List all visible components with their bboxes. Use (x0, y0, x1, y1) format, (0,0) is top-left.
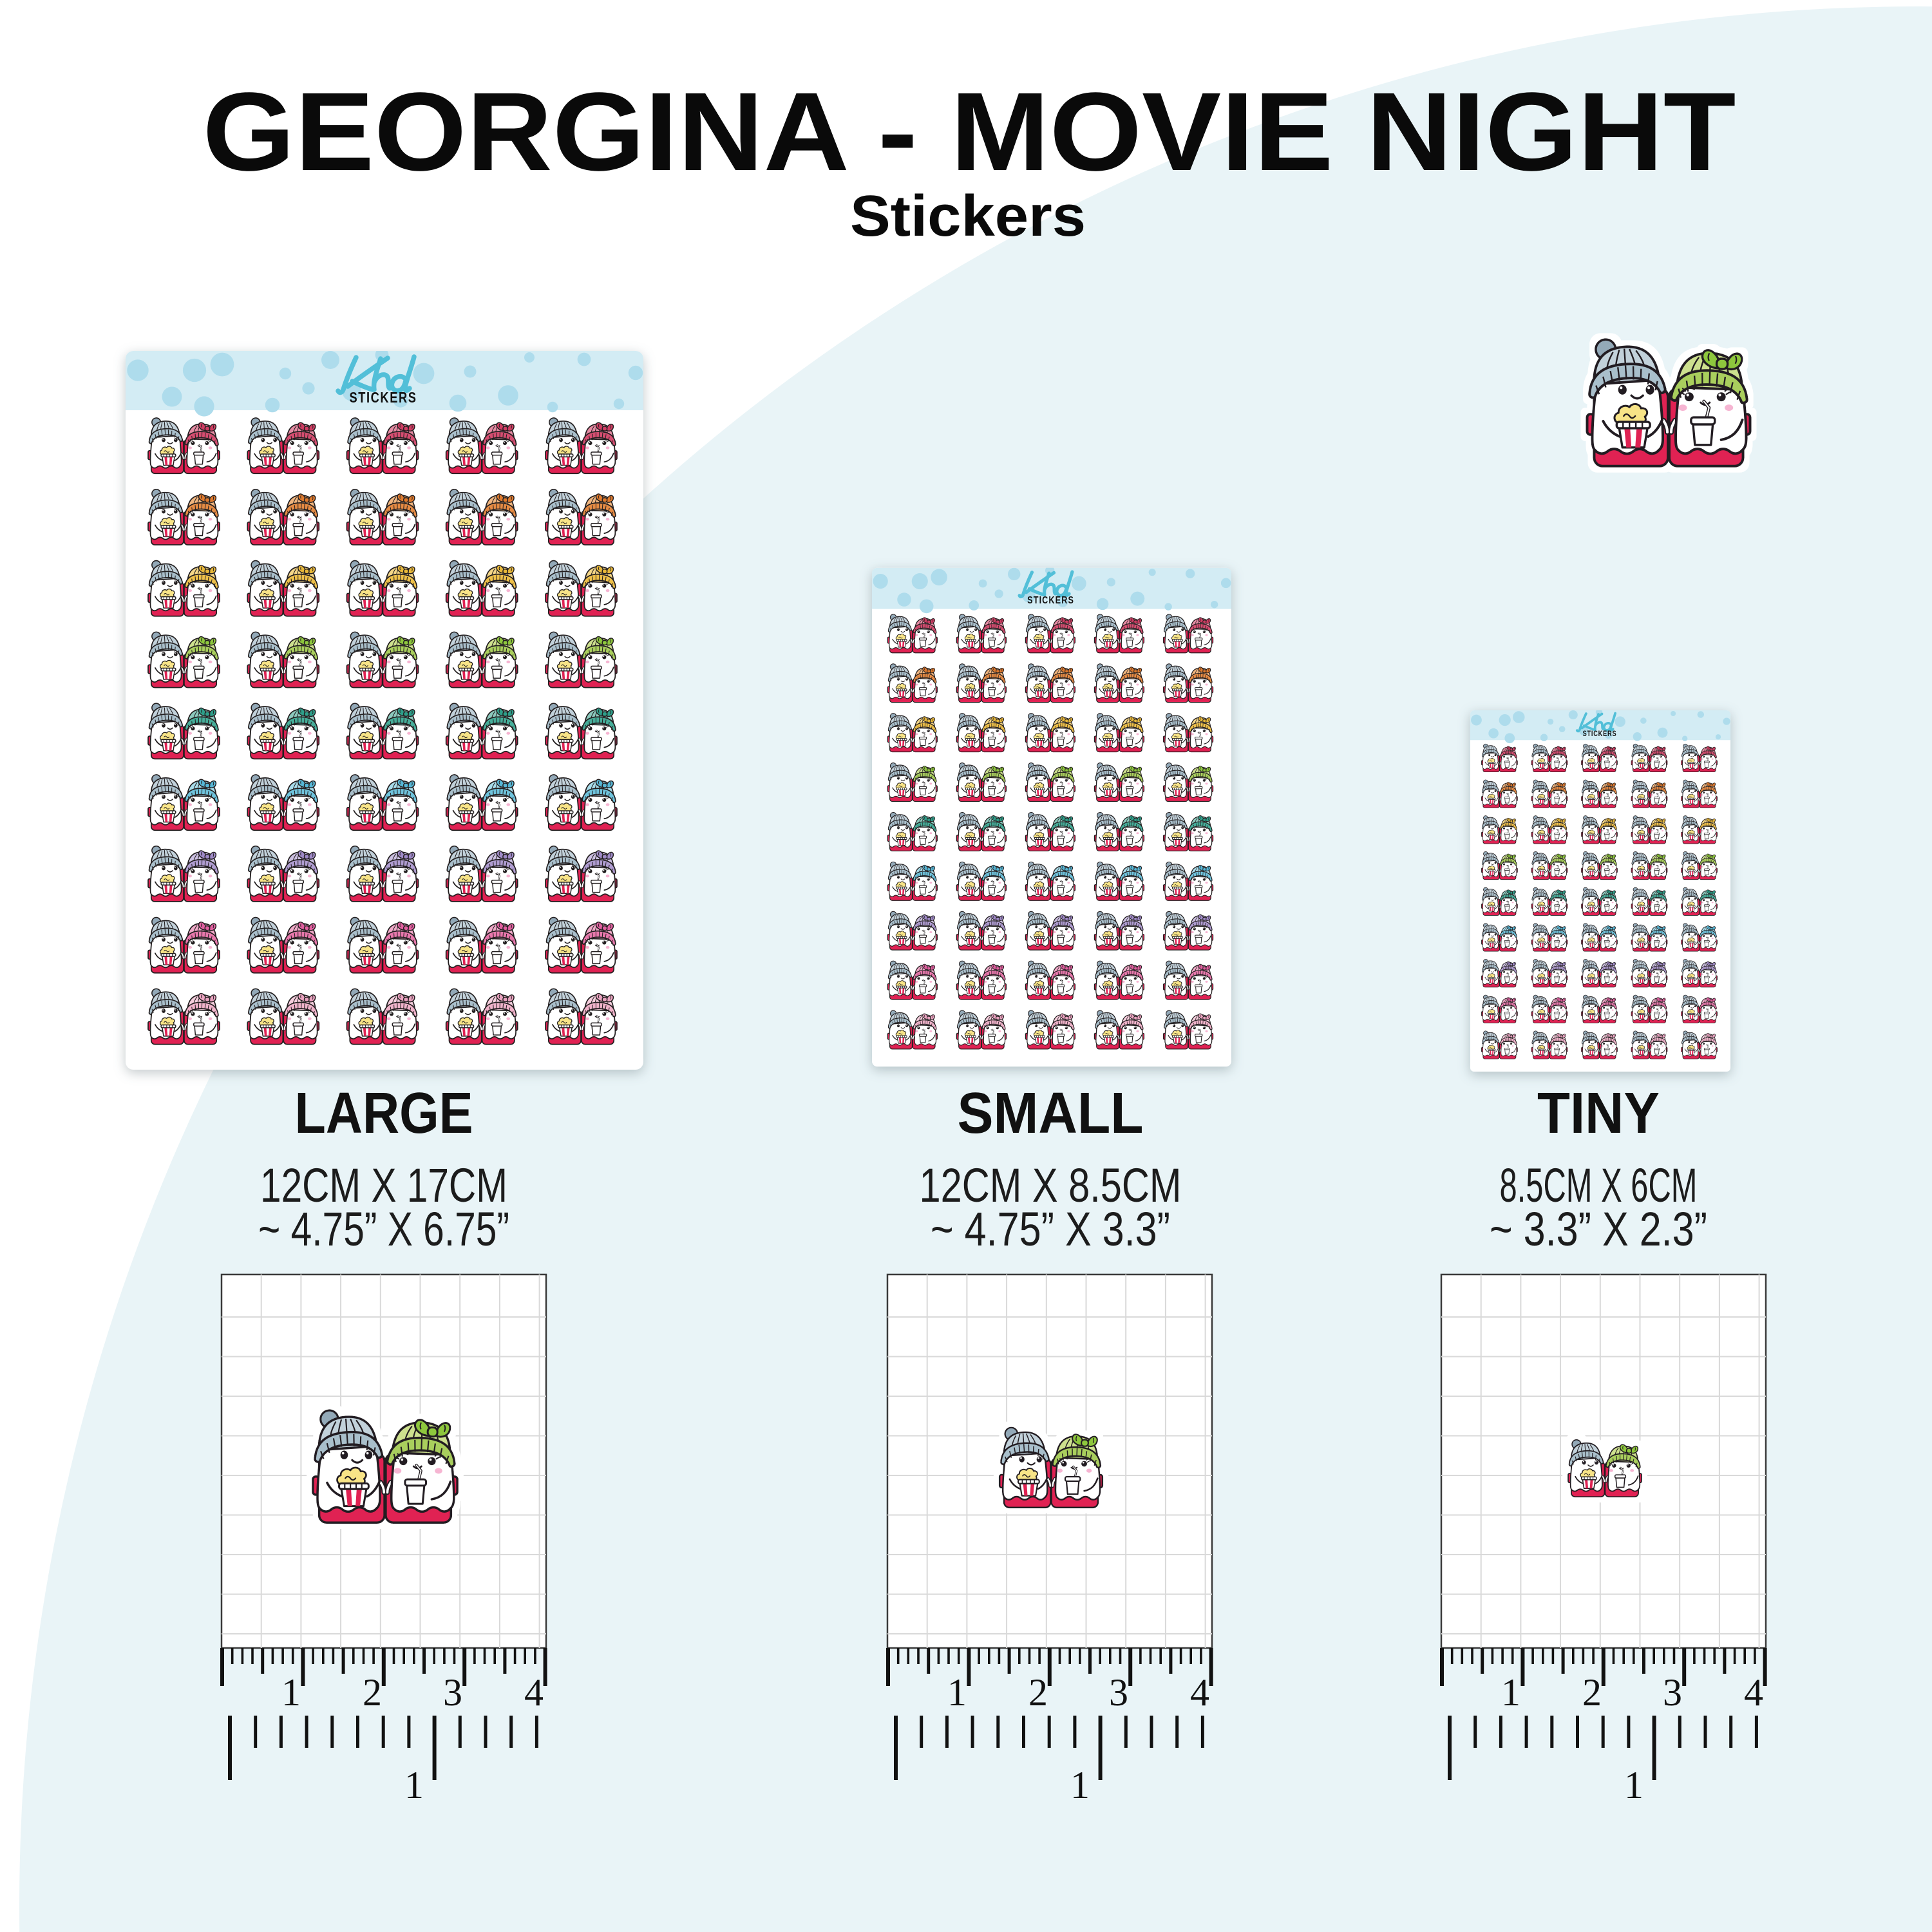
svg-text:3: 3 (1663, 1671, 1682, 1714)
svg-text:4: 4 (524, 1671, 544, 1714)
svg-text:~ 3.3” X 2.3”: ~ 3.3” X 2.3” (1490, 1202, 1707, 1256)
svg-text:Stickers: Stickers (850, 184, 1086, 249)
svg-text:LARGE: LARGE (295, 1081, 473, 1146)
svg-text:3: 3 (443, 1671, 462, 1714)
svg-text:1: 1 (404, 1764, 424, 1806)
svg-text:2: 2 (363, 1671, 382, 1714)
svg-text:4: 4 (1744, 1671, 1763, 1714)
svg-text:2: 2 (1028, 1671, 1048, 1714)
svg-text:1: 1 (947, 1671, 967, 1714)
svg-text:2: 2 (1582, 1671, 1602, 1714)
svg-text:SMALL: SMALL (958, 1081, 1144, 1146)
svg-text:~ 4.75” X 3.3”: ~ 4.75” X 3.3” (931, 1202, 1170, 1256)
svg-text:1: 1 (1070, 1764, 1090, 1806)
svg-text:1: 1 (1501, 1671, 1520, 1714)
svg-text:TINY: TINY (1537, 1081, 1660, 1146)
svg-text:3: 3 (1109, 1671, 1128, 1714)
svg-text:~ 4.75” X 6.75”: ~ 4.75” X 6.75” (258, 1202, 509, 1256)
svg-text:1: 1 (281, 1671, 301, 1714)
svg-text:GEORGINA - MOVIE NIGHT: GEORGINA - MOVIE NIGHT (203, 69, 1736, 194)
svg-text:4: 4 (1190, 1671, 1209, 1714)
svg-text:1: 1 (1624, 1764, 1643, 1806)
